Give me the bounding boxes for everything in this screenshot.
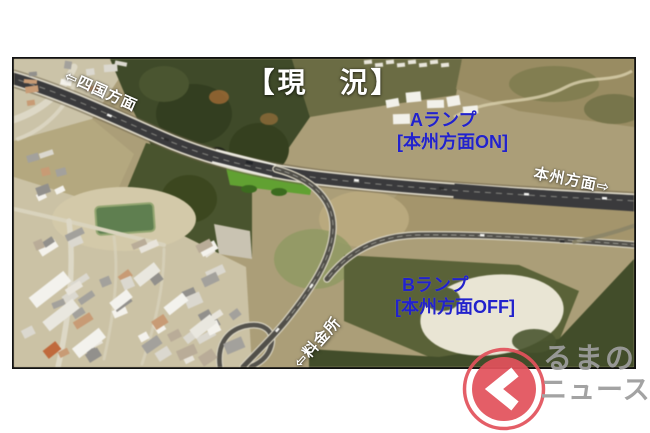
ramp-a-detail: [本州方面ON]	[397, 131, 508, 153]
logo-text-line1: るまの	[543, 344, 636, 375]
ramp-a-label: Aランプ [本州方面ON]	[397, 109, 508, 153]
kuruma-news-logo: るまの ニュース	[461, 346, 650, 433]
aerial-photo: 【現 況】 ⇦四国方面 Aランプ [本州方面ON] 本州方面⇨ Bランプ [本州…	[12, 57, 636, 369]
ku-chevron-icon	[461, 346, 548, 433]
photo-title: 【現 況】	[246, 61, 401, 101]
page: { "header": { "title": "【現 況】" }, "annot…	[0, 0, 650, 433]
ramp-b-detail: [本州方面OFF]	[395, 296, 515, 318]
ramp-b-label: Bランプ [本州方面OFF]	[395, 274, 515, 318]
logo-text-line2: ニュース	[540, 375, 650, 406]
ramp-a-name: Aランプ	[397, 109, 508, 131]
ramp-b-name: Bランプ	[395, 274, 515, 296]
